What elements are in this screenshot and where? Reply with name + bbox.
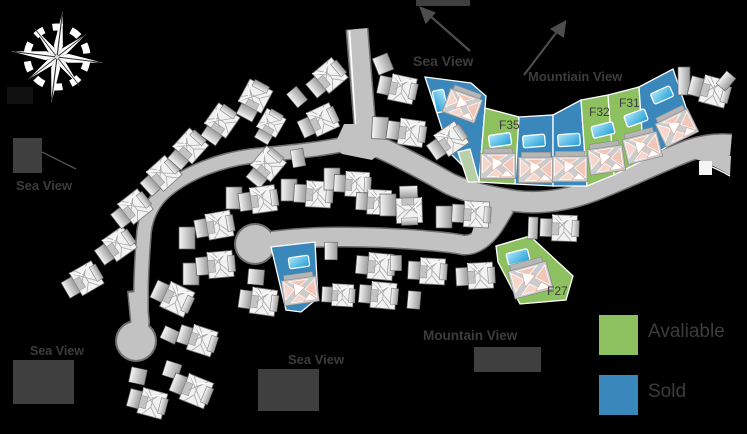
svg-text:F31: F31 bbox=[619, 96, 640, 110]
svg-text:Sold: Sold bbox=[648, 381, 686, 402]
svg-text:F27: F27 bbox=[547, 284, 568, 298]
svg-text:Avaliable: Avaliable bbox=[648, 321, 725, 342]
svg-text:Mountiain View: Mountiain View bbox=[528, 69, 623, 84]
svg-text:Sea View: Sea View bbox=[30, 344, 84, 358]
svg-text:Sea View: Sea View bbox=[288, 352, 345, 367]
svg-text:F32: F32 bbox=[589, 105, 610, 119]
svg-text:F35: F35 bbox=[499, 118, 520, 132]
svg-text:Sea View: Sea View bbox=[16, 178, 73, 193]
svg-text:Sea View: Sea View bbox=[413, 53, 474, 69]
svg-text:Mountain View: Mountain View bbox=[423, 328, 518, 343]
